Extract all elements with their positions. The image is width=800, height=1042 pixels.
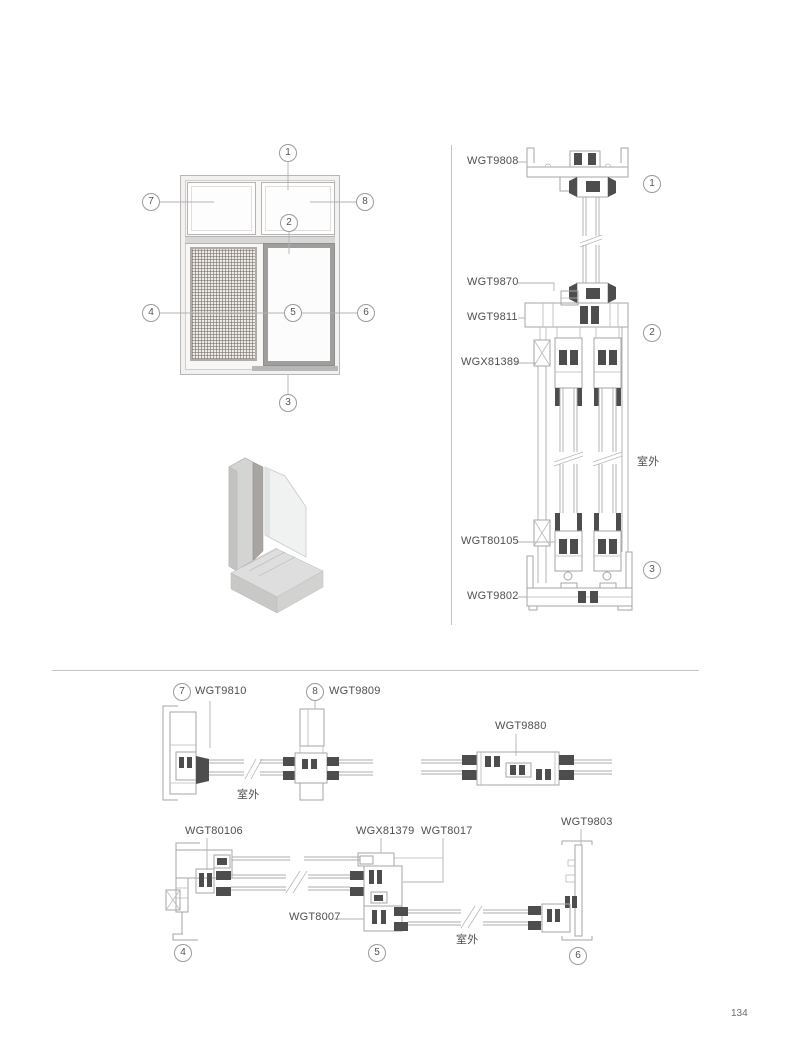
vertical-section-drawing (515, 148, 632, 610)
horizontal-divider-line (52, 670, 699, 671)
label-row2-interlock: WGX81379 (356, 825, 414, 837)
callout-3-section: 3 (643, 561, 661, 579)
callout-7-section: 7 (173, 683, 191, 701)
outdoor-label-vertical: 室外 (637, 453, 659, 469)
label-transom: WGT9811 (467, 311, 518, 323)
label-head-frame: WGT9808 (467, 155, 519, 167)
label-sill: WGT9802 (467, 590, 519, 602)
outdoor-label-row2: 室外 (456, 931, 478, 947)
callout-3-elevation: 3 (279, 394, 297, 412)
callout-5-section: 5 (368, 944, 386, 962)
callout-2-section: 2 (643, 324, 661, 342)
label-transom-sash: WGT9870 (467, 276, 519, 288)
callout-5-elevation: 5 (284, 304, 302, 322)
label-screen-track: WGX81389 (461, 356, 519, 368)
elevation-leader-lines (159, 161, 358, 394)
callout-4-section: 4 (174, 944, 192, 962)
callout-1-elevation: 1 (279, 144, 297, 162)
label-interlock: WGT80105 (461, 535, 519, 547)
row1-left-drawing (163, 701, 373, 800)
label-row1-right: WGT9809 (329, 685, 381, 697)
callout-1-section: 1 (643, 175, 661, 193)
callout-4-elevation: 4 (142, 304, 160, 322)
label-row2-right-jamb: WGT9803 (561, 816, 613, 828)
callout-8-section: 8 (306, 683, 324, 701)
label-row1-left: WGT9810 (195, 685, 247, 697)
section-drawings (0, 0, 800, 1042)
page-number: 134 (731, 1008, 748, 1019)
callout-8-elevation: 8 (356, 193, 374, 211)
label-row2-sash: WGT8017 (421, 825, 473, 837)
callout-2-elevation: 2 (280, 214, 298, 232)
catalog-page: WGT9808 WGT9870 WGT9811 WGX81389 WGT8010… (0, 0, 800, 1042)
row2-drawing (166, 829, 592, 940)
label-row2-left-jamb: WGT80106 (185, 825, 243, 837)
vertical-divider-line (451, 145, 452, 625)
label-row2-adapter: WGT8007 (289, 911, 341, 923)
callout-6-elevation: 6 (357, 304, 375, 322)
callout-7-elevation: 7 (142, 193, 160, 211)
row1-right-drawing (421, 734, 612, 785)
label-row1-center: WGT9880 (495, 720, 547, 732)
callout-6-section: 6 (569, 947, 587, 965)
outdoor-label-row1: 室外 (237, 786, 259, 802)
